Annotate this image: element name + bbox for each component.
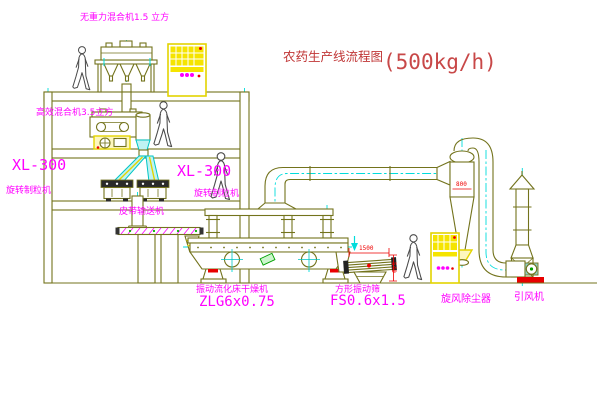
induced-draft-fan <box>506 261 544 283</box>
granulator-left <box>101 180 133 202</box>
worker-figure-ground <box>404 235 422 280</box>
worker-figure-roof <box>73 47 90 90</box>
dryer-foot-left <box>201 269 226 283</box>
label-granulator-left-name: 旋转制粒机 <box>6 187 51 196</box>
diagram-title: 农药生产线流程图(500kg/h) <box>283 46 497 74</box>
control-cabinet-2 <box>431 233 459 283</box>
label-dryer-model: ZLG6x0.75 <box>199 295 275 309</box>
fluid-bed-dryer <box>185 209 350 283</box>
label-belt-conveyor: 皮带输送机 <box>119 208 164 217</box>
label-granulator-left-model: XL-300 <box>12 158 66 173</box>
dimension-cyclone: 800 <box>456 182 467 188</box>
vibrating-sieve <box>343 236 397 283</box>
label-granulator-right-name: 旋转制粒机 <box>194 190 239 199</box>
y-splitter-chute <box>113 156 159 182</box>
label-high-efficiency-mixer: 高效混合机3.5立方 <box>36 109 113 118</box>
dimension-sieve-length: 1500 <box>359 246 373 252</box>
dryer-riser-pipes <box>206 216 334 239</box>
label-zero-gravity-mixer: 无重力混合机1.5 立方 <box>80 14 169 23</box>
label-fan: 引风机 <box>514 293 544 303</box>
worker-figure-floor2 <box>154 102 172 147</box>
exhaust-duct <box>258 162 450 210</box>
control-cabinet-1 <box>168 44 206 96</box>
pesticide-line-flow-diagram: 农药生产线流程图(500kg/h) 无重力混合机1.5 立方 高效混合机3.5立… <box>0 0 600 403</box>
title-text: 农药生产线流程图 <box>283 49 383 64</box>
label-cyclone: 旋风除尘器 <box>441 295 491 305</box>
title-capacity: (500kg/h) <box>383 50 497 74</box>
dimension-sieve-height: 540 <box>390 262 396 273</box>
label-granulator-right-model: XL-300 <box>177 164 231 179</box>
label-sieve-model: FS0.6x1.5 <box>330 294 406 308</box>
